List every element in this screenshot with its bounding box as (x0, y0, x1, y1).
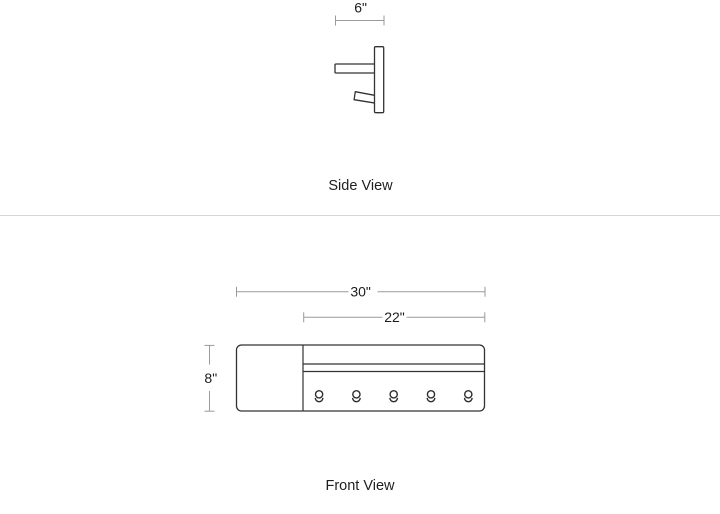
svg-text:6": 6" (354, 0, 367, 16)
svg-text:8": 8" (204, 370, 217, 386)
svg-text:Side View: Side View (328, 178, 393, 194)
svg-text:22": 22" (384, 309, 405, 325)
svg-text:30": 30" (350, 284, 371, 300)
svg-text:Front View: Front View (325, 478, 395, 494)
